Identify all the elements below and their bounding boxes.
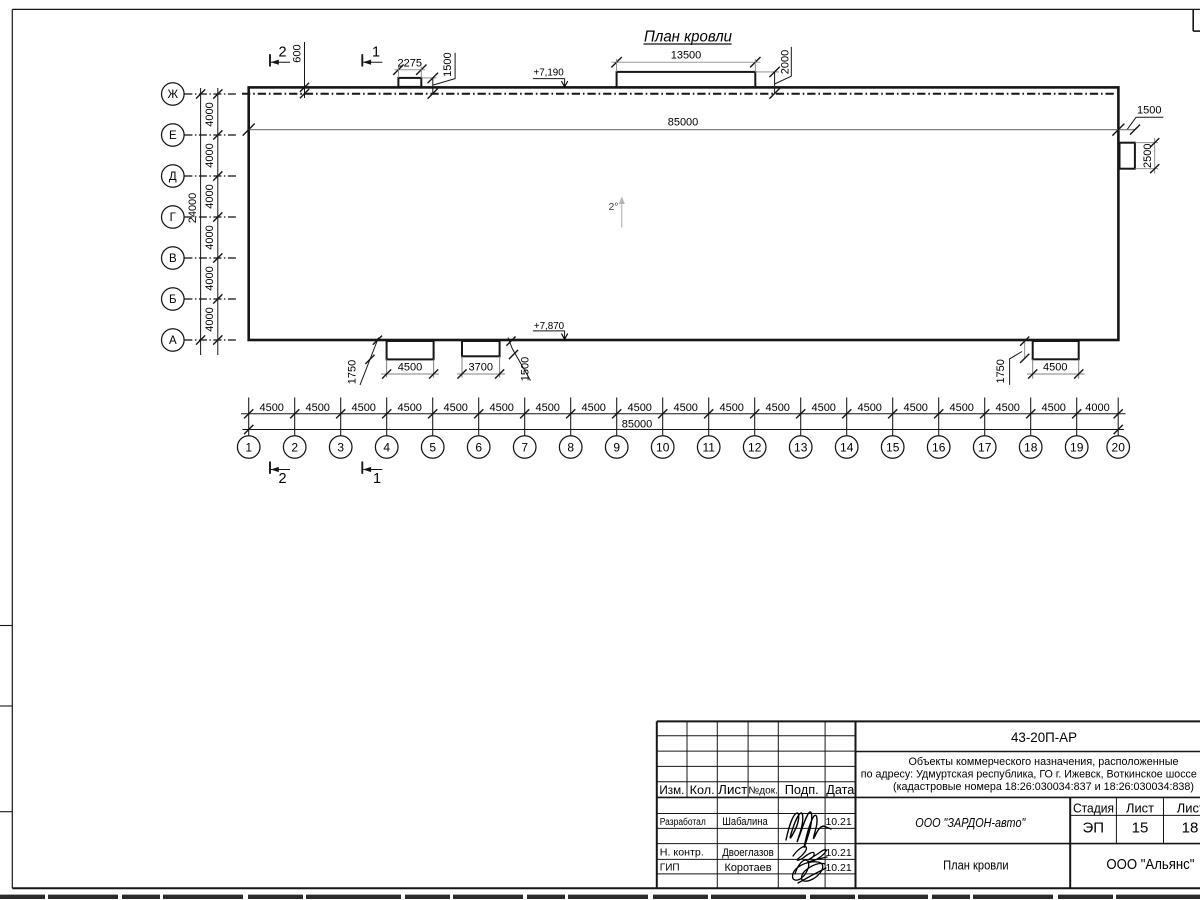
svg-text:2: 2	[278, 471, 286, 487]
svg-text:4000: 4000	[204, 184, 216, 208]
svg-text:+7,190: +7,190	[533, 68, 564, 79]
svg-text:4500: 4500	[857, 402, 881, 414]
svg-text:Н. контр.: Н. контр.	[660, 848, 704, 859]
svg-text:4500: 4500	[305, 402, 329, 414]
svg-text:Дата: Дата	[826, 783, 854, 797]
svg-text:Изм.: Изм.	[659, 783, 684, 797]
svg-text:Двоеглазов: Двоеглазов	[722, 847, 774, 859]
svg-text:12: 12	[748, 440, 762, 454]
svg-text:4500: 4500	[259, 402, 283, 414]
svg-text:1: 1	[372, 45, 380, 61]
svg-text:8: 8	[567, 440, 574, 454]
svg-text:10.21: 10.21	[825, 816, 851, 828]
svg-text:Г: Г	[170, 212, 177, 224]
svg-text:4500: 4500	[673, 402, 697, 414]
svg-text:4500: 4500	[765, 402, 789, 414]
svg-text:Коротаев: Коротаев	[725, 862, 772, 874]
svg-text:4: 4	[383, 440, 390, 454]
svg-text:4500: 4500	[443, 402, 467, 414]
svg-text:Б: Б	[169, 294, 177, 306]
svg-text:1500: 1500	[1137, 104, 1161, 116]
svg-text:(кадастровые номера 18:26:0300: (кадастровые номера 18:26:030034:837 и 1…	[893, 781, 1194, 793]
svg-text:Ж: Ж	[167, 89, 178, 101]
svg-text:ООО "Альянс": ООО "Альянс"	[1106, 856, 1194, 873]
svg-text:4500: 4500	[489, 402, 513, 414]
svg-text:по адресу: Удмуртская республи: по адресу: Удмуртская республика, ГО г. …	[861, 769, 1197, 781]
svg-text:1750: 1750	[995, 359, 1007, 383]
svg-text:4500: 4500	[719, 402, 743, 414]
svg-text:ООО "ЗАРДОН-авто": ООО "ЗАРДОН-авто"	[915, 815, 1026, 830]
svg-text:4500: 4500	[535, 402, 559, 414]
svg-text:План кровли: План кровли	[943, 857, 1009, 872]
svg-text:7: 7	[521, 440, 528, 454]
svg-text:1: 1	[373, 471, 381, 487]
svg-text:А: А	[169, 335, 177, 347]
svg-text:19: 19	[1070, 440, 1084, 454]
svg-text:4000: 4000	[204, 102, 216, 126]
svg-text:Листов: Листов	[1177, 801, 1200, 815]
svg-text:2500: 2500	[1142, 143, 1154, 167]
svg-text:15: 15	[886, 440, 900, 454]
svg-text:ГИП: ГИП	[660, 863, 680, 874]
svg-text:4500: 4500	[949, 402, 973, 414]
svg-text:13500: 13500	[671, 50, 702, 62]
svg-text:2: 2	[291, 440, 298, 454]
svg-text:4500: 4500	[581, 402, 605, 414]
svg-text:3700: 3700	[469, 362, 493, 374]
svg-text:4000: 4000	[204, 307, 216, 331]
svg-text:4000: 4000	[204, 225, 216, 249]
svg-text:В: В	[169, 253, 177, 265]
svg-text:4000: 4000	[1085, 402, 1109, 414]
svg-text:№док.: №док.	[748, 786, 778, 797]
svg-text:10: 10	[656, 440, 670, 454]
svg-text:4500: 4500	[1041, 402, 1065, 414]
svg-text:9: 9	[613, 440, 620, 454]
svg-text:Е: Е	[169, 130, 177, 142]
svg-text:17: 17	[978, 440, 992, 454]
svg-text:Лист: Лист	[1126, 801, 1154, 815]
svg-text:2275: 2275	[398, 58, 422, 70]
svg-text:18: 18	[1024, 440, 1038, 454]
svg-text:85000: 85000	[668, 116, 699, 128]
svg-text:1: 1	[245, 440, 252, 454]
svg-text:1500: 1500	[442, 52, 454, 76]
svg-text:24000: 24000	[187, 193, 199, 224]
svg-text:600: 600	[292, 44, 304, 62]
svg-text:Разработал: Разработал	[660, 816, 706, 828]
svg-text:Подп.: Подп.	[785, 782, 819, 797]
svg-text:Шабалина: Шабалина	[722, 816, 768, 828]
svg-text:4500: 4500	[398, 362, 422, 374]
svg-text:2000: 2000	[779, 50, 791, 74]
svg-text:85000: 85000	[622, 418, 653, 430]
svg-text:Кол.: Кол.	[690, 783, 715, 797]
svg-text:4500: 4500	[1043, 362, 1067, 374]
svg-text:4500: 4500	[811, 402, 835, 414]
svg-text:20: 20	[1112, 440, 1126, 454]
svg-text:3: 3	[337, 440, 344, 454]
svg-text:4500: 4500	[351, 402, 375, 414]
svg-text:Стадия: Стадия	[1073, 801, 1114, 815]
svg-text:18: 18	[1182, 819, 1199, 836]
svg-text:11: 11	[702, 440, 715, 454]
svg-text:4500: 4500	[995, 402, 1019, 414]
svg-text:16: 16	[932, 440, 946, 454]
svg-text:Лист: Лист	[718, 783, 747, 797]
svg-text:4500: 4500	[627, 402, 651, 414]
svg-text:4000: 4000	[204, 266, 216, 290]
svg-text:10.21: 10.21	[825, 862, 851, 874]
svg-text:4000: 4000	[204, 143, 216, 167]
svg-text:15: 15	[1132, 819, 1149, 836]
svg-text:4500: 4500	[903, 402, 927, 414]
svg-text:1500: 1500	[519, 357, 531, 381]
svg-text:2: 2	[278, 45, 286, 61]
svg-text:6: 6	[475, 440, 482, 454]
svg-text:Объекты коммерческого назначен: Объекты коммерческого назначения, распол…	[909, 756, 1179, 768]
svg-text:5: 5	[429, 440, 436, 454]
svg-text:13: 13	[794, 440, 808, 454]
svg-text:10.21: 10.21	[825, 847, 851, 859]
svg-text:1750: 1750	[346, 360, 358, 384]
svg-text:2°: 2°	[608, 201, 618, 213]
svg-text:14: 14	[840, 440, 854, 454]
svg-text:43-20П-АР: 43-20П-АР	[1011, 730, 1077, 745]
svg-text:4500: 4500	[397, 402, 421, 414]
svg-text:План кровли: План кровли	[644, 29, 732, 46]
svg-text:Д: Д	[169, 171, 177, 183]
svg-text:ЭП: ЭП	[1083, 819, 1105, 836]
